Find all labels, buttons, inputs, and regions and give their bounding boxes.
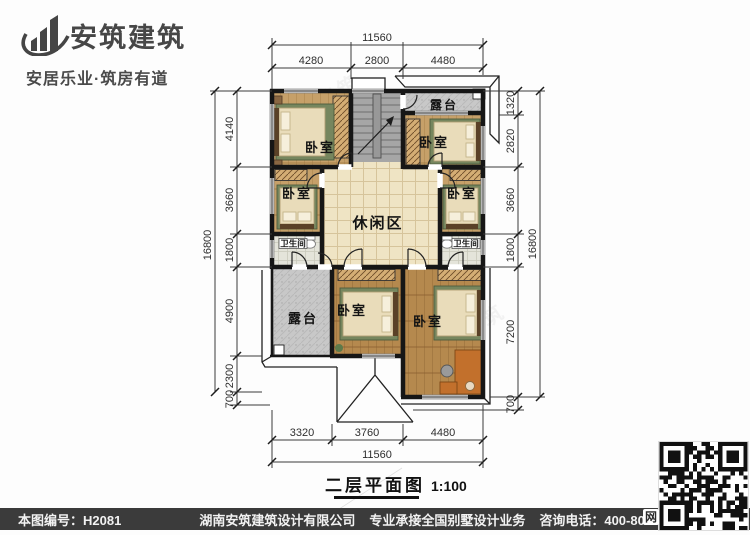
dim-right-1: 1320 <box>505 91 517 115</box>
dim-bottom-2: 3760 <box>355 427 379 439</box>
wardrobe <box>333 96 349 158</box>
dim-right-total: 16800 <box>527 229 539 260</box>
label-terrace-bottom: 露台 <box>288 311 318 326</box>
footer-service: 专业承接全国别墅设计业务 <box>369 510 525 529</box>
dim-left-total: 16800 <box>202 230 214 261</box>
dim-right-3: 3660 <box>505 188 517 212</box>
chair <box>441 365 453 377</box>
dim-top-1: 4280 <box>299 55 323 67</box>
label-bedroom-bottom-center: 卧室 <box>337 303 367 318</box>
floor-plan-drawing: 安筑建筑 安筑建筑 安筑建筑 安筑建筑 <box>0 0 750 530</box>
wardrobe <box>406 119 420 165</box>
dim-top-2: 2800 <box>365 55 389 67</box>
label-bath-left: 卫生间 <box>280 239 306 249</box>
dim-right-6: 700 <box>505 395 517 413</box>
footer-company: 湖南安筑建筑设计有限公司 <box>199 510 355 529</box>
label-leisure-area: 休闲区 <box>351 214 403 232</box>
label-bedroom-top-right: 卧室 <box>419 135 449 150</box>
qr-code <box>659 442 748 530</box>
wardrobe <box>338 270 395 281</box>
dim-left-4: 4900 <box>224 299 236 323</box>
qr-net-badge: 网 <box>643 509 659 525</box>
dim-right-2: 2820 <box>505 129 517 153</box>
bed <box>273 96 334 168</box>
drawing-number: 本图编号：H2081 <box>18 510 121 529</box>
label-bedroom-top-left: 卧室 <box>305 140 335 155</box>
label-terrace-top: 露台 <box>430 97 458 112</box>
dim-bottom-total: 11560 <box>362 449 392 461</box>
dim-left-5: 2300 <box>224 364 236 388</box>
bed <box>434 286 482 340</box>
dim-top-3: 4480 <box>431 55 455 67</box>
wardrobe <box>450 170 481 181</box>
label-bedroom-bottom-right: 卧室 <box>413 314 443 329</box>
label-bedroom-mid-right: 卧室 <box>447 186 477 201</box>
dim-right-4: 1800 <box>505 238 517 262</box>
wardrobe <box>275 170 307 181</box>
footer-bar: 本图编号：H2081 湖南安筑建筑设计有限公司 专业承接全国别墅设计业务 咨询电… <box>0 508 750 530</box>
dim-right-5: 7200 <box>505 320 517 344</box>
label-bath-right: 卫生间 <box>453 239 479 249</box>
dim-top-total: 11560 <box>362 32 392 44</box>
dim-left-6: 700 <box>224 390 236 408</box>
wardrobe <box>438 270 481 281</box>
drawing-scale: 1:100 <box>431 478 467 494</box>
title-underline <box>334 496 419 499</box>
dim-left-1: 4140 <box>224 117 236 141</box>
drawing-title: 二层平面图 <box>325 476 425 495</box>
dim-left-2: 3660 <box>224 188 236 212</box>
dim-bottom-3: 4480 <box>431 427 455 439</box>
dim-bottom-1: 3320 <box>290 427 314 439</box>
column <box>274 345 284 355</box>
dim-left-3: 1800 <box>224 238 236 262</box>
label-bedroom-mid-left: 卧室 <box>282 186 312 201</box>
